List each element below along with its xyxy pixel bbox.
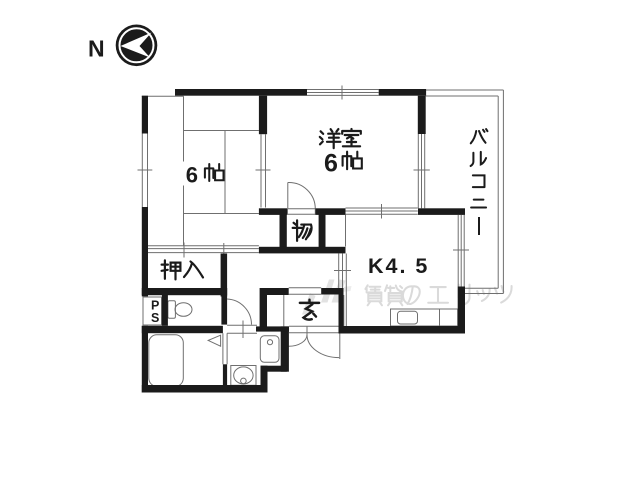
svg-text:S: S <box>151 311 159 325</box>
svg-text:N: N <box>88 36 105 62</box>
svg-text:6: 6 <box>324 150 338 178</box>
svg-text:K4. 5: K4. 5 <box>368 254 429 278</box>
svg-text:6: 6 <box>186 163 198 188</box>
